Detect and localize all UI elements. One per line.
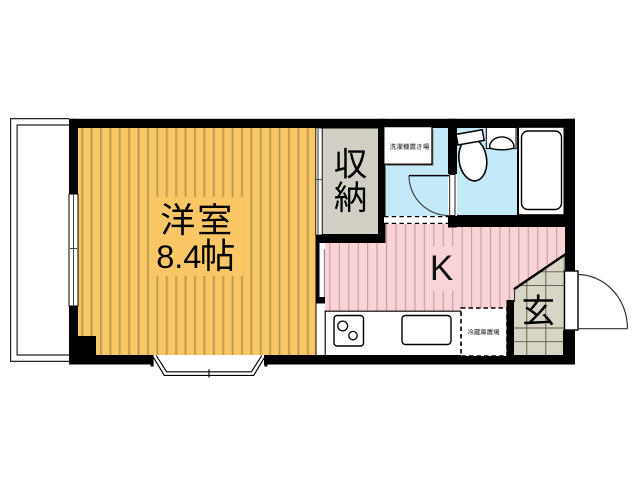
svg-text:K: K bbox=[430, 249, 453, 288]
svg-text:8.4: 8.4 bbox=[156, 239, 201, 275]
